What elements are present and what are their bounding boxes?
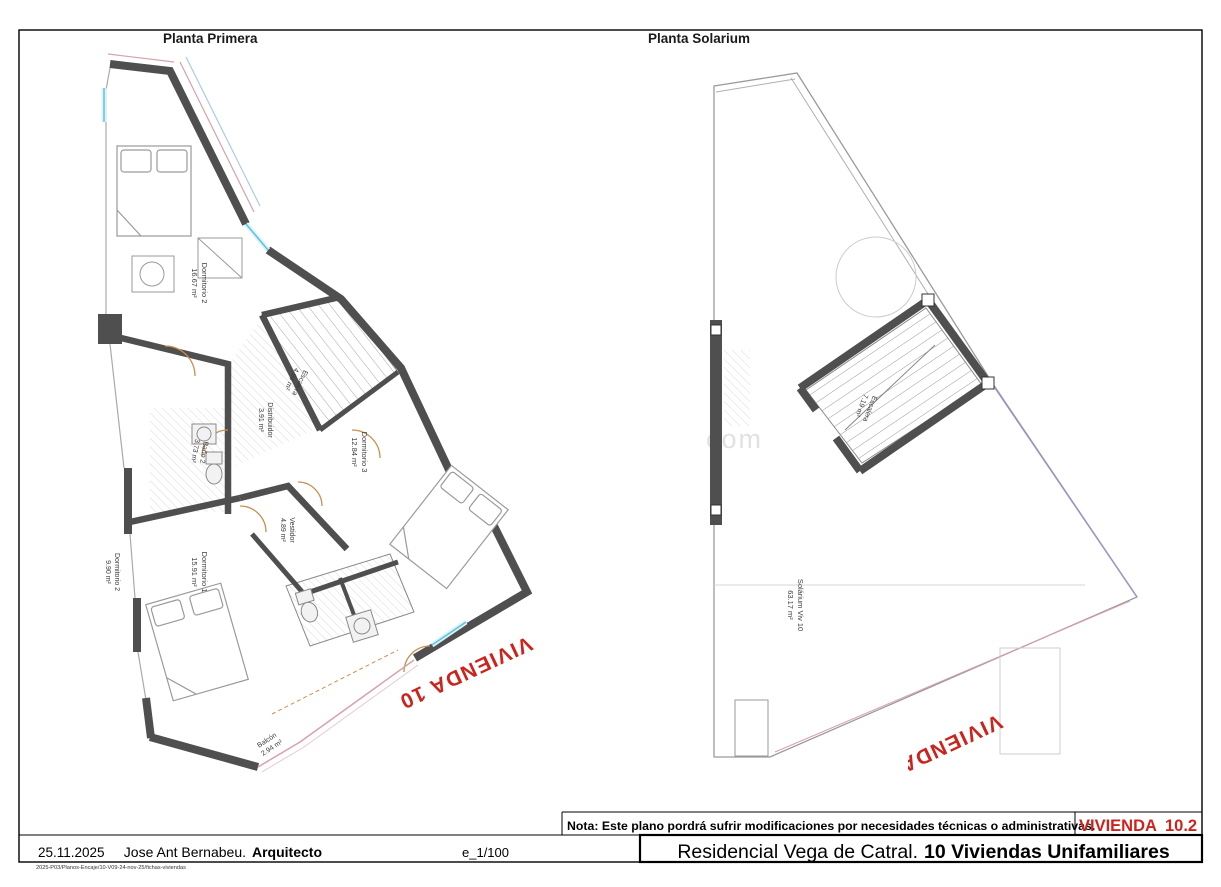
plan1-balcony-railing [258,660,418,772]
architect-role: Arquitecto [252,844,322,860]
file-reference: 2025-P03/Planos-Encaje/10-V09-24-nov-25/… [36,865,186,871]
room-name: Dormitorio 2 [200,263,209,304]
bed-icon-dormitorio2 [117,146,191,236]
plan2-stair [800,237,994,471]
room-label-solarium: Solárium Viv 10 63.17 m² [786,579,805,631]
room-area: 4.89 m² [279,518,286,542]
boundary-pink-line [775,601,1130,752]
project-name: Residencial Vega de Catral. [677,841,918,863]
room-name: Dormitorio 3 [360,432,369,473]
floorplan-canvas: Planta Primera Planta Solarium com [0,0,1221,887]
vivienda-stamp-plan2: VIVIENDA 10 [865,709,1005,791]
note-vivienda-label: VIVIENDA [1079,817,1157,835]
vivienda-stamp-plan2-clipgroup: VIVIENDA 10 [865,709,1005,791]
room-name: Distribuidor [266,402,273,438]
note-text: Nota: Este plano pordrá sufrir modificac… [567,819,1095,833]
architect-name: Jose Ant Bernabeu. [124,844,246,860]
bed-icon-dormitorio3 [390,465,508,588]
bed-icon-dormitorio1 [146,583,249,701]
room-name: Solárium Viv 10 [796,579,805,631]
room-area: 16.67 m² [190,268,199,298]
title-block: 25.11.2025 Jose Ant Bernabeu. Arquitecto… [36,841,1170,871]
room-area: 9.90 m² [104,560,111,584]
plan1-wall-block [98,314,122,344]
room-name: Vestidor [288,517,295,543]
project-emphasis: 10 Viviendas Unifamiliares [924,841,1170,863]
plan2-drawing: Escalera 7.19 m² Solárium Viv 10 63.17 m… [710,73,1137,791]
room-area: 3.91 m² [257,408,264,432]
room-area: 15.91 m² [190,557,199,587]
plan2-left-wall [710,320,750,525]
plan2-title: Planta Solarium [648,31,750,46]
note-row: Nota: Este plano pordrá sufrir modificac… [567,817,1197,835]
date-field: 25.11.2025 [38,845,105,860]
wardrobe-icon [132,238,242,292]
boundary-purple-line [995,388,1137,597]
vivienda-stamp-plan1: VIVIENDA 10 [395,631,535,713]
room-area: 12.84 m² [350,437,359,467]
room-name: Dormitorio 2 [113,553,120,591]
room-label-dormitorio2: Dormitorio 2 16.67 m² [190,263,209,304]
note-vivienda-number: 10.2 [1165,817,1197,835]
room-label-dormitorio2-left: Dormitorio 2 9.90 m² [104,553,120,591]
room-label-dormitorio3: Dormitorio 3 12.84 m² [350,432,369,473]
room-label-dormitorio1: Dormitorio 1 15.91 m² [190,552,209,593]
drawing-sheet: Planta Primera Planta Solarium com [0,0,1221,887]
room-area: 63.17 m² [786,590,795,620]
plan1-title: Planta Primera [163,31,258,46]
scale-field: e_1/100 [462,845,509,860]
room-label-vestidor: Vestidor 4.89 m² [279,517,295,543]
plan1-drawing: Dormitorio 2 16.67 m² Escalera 4.94 m² D… [98,54,536,772]
room-name: Dormitorio 1 [200,552,209,593]
